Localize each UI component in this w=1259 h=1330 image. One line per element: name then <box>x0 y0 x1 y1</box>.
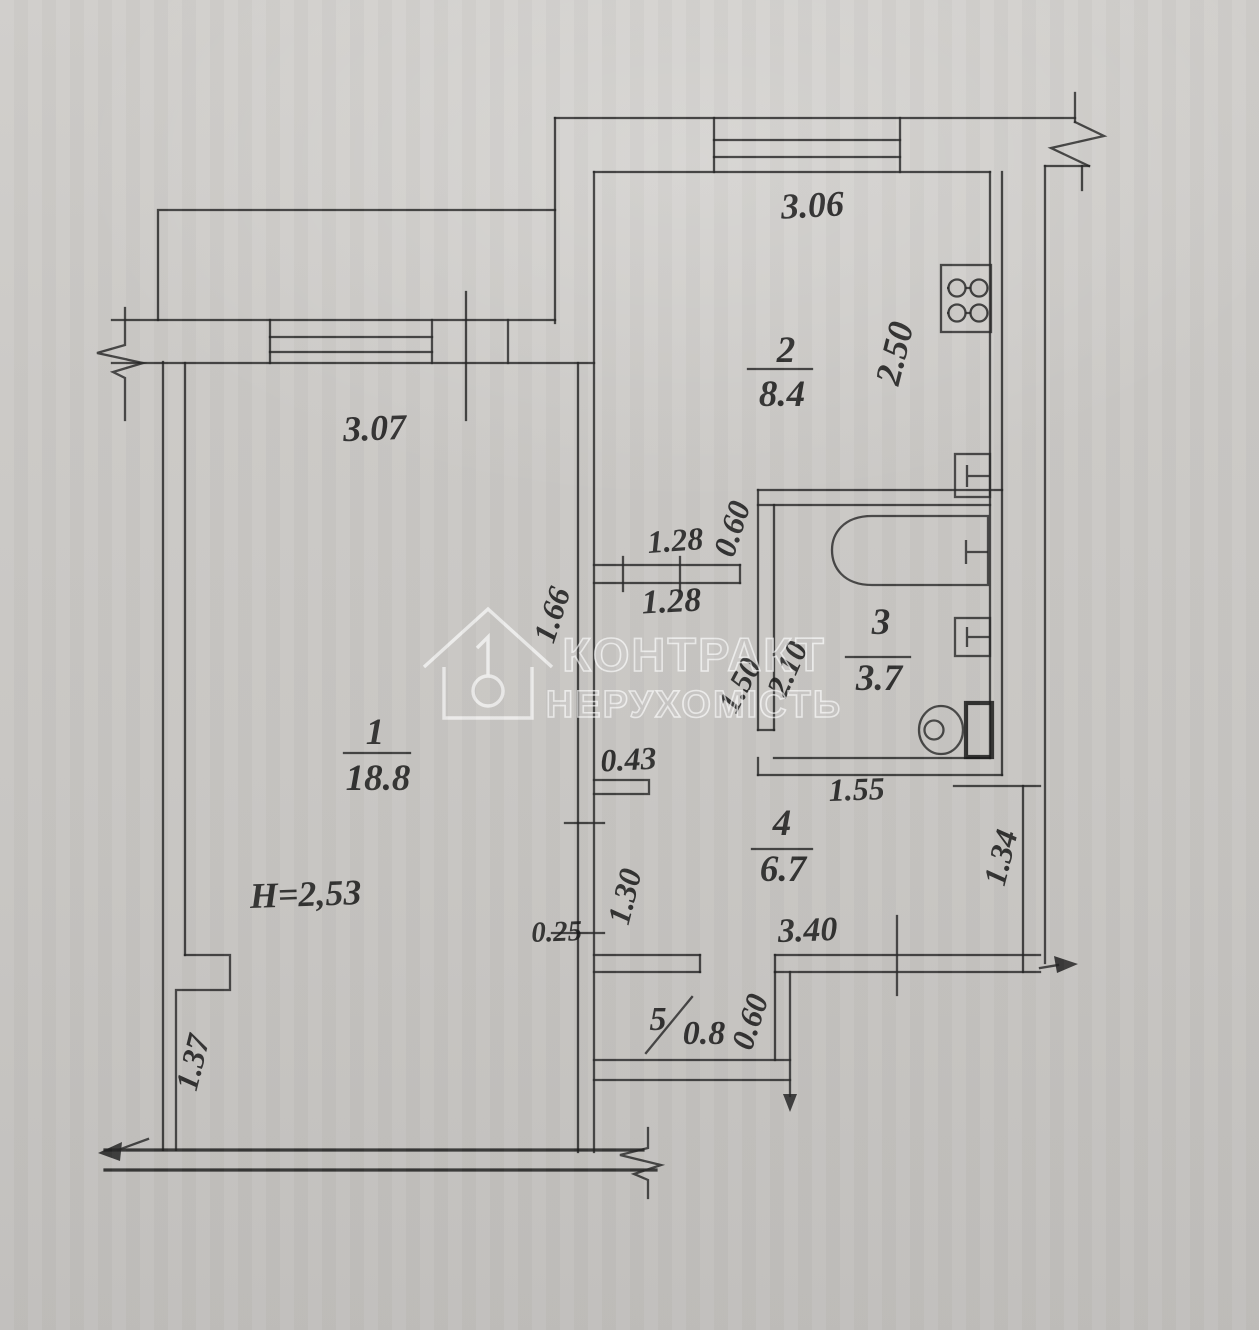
room-area: 8.4 <box>759 374 805 415</box>
watermark-line2: НЕРУХОМІСТЬ <box>546 684 842 726</box>
watermark: КОНТРАКТ НЕРУХОМІСТЬ <box>424 609 842 726</box>
dimension-label: 0.25 <box>531 915 583 949</box>
balcony-outline <box>158 210 555 320</box>
room-2-label: 2 8.4 <box>748 330 812 415</box>
room-number: 1 <box>366 712 385 753</box>
wall-break-icon <box>1051 122 1104 166</box>
room-number: 4 <box>772 803 792 844</box>
dimension-label: 0.60 <box>706 496 758 560</box>
dimension-label: 1.55 <box>828 770 885 808</box>
room-3-label: 3 3.7 <box>846 602 910 699</box>
room-5-label: 5 0.8 <box>646 997 725 1053</box>
stove-icon <box>941 265 991 332</box>
dimension-label: 1.34 <box>976 826 1024 889</box>
room-area: 3.7 <box>855 658 904 699</box>
toilet-icon <box>919 703 992 757</box>
wall-break-icon <box>620 1128 661 1198</box>
dimension-label: 3.07 <box>341 407 408 449</box>
floor-plan-svg: 1 18.8 2 8.4 3 3.7 4 6.7 5 0.8 H=2,53 3.… <box>0 0 1259 1330</box>
dimension-label: 3.40 <box>776 911 838 950</box>
room-number: 3 <box>871 602 891 643</box>
scanned-floor-plan-page: 1 18.8 2 8.4 3 3.7 4 6.7 5 0.8 H=2,53 3.… <box>0 0 1259 1330</box>
washbasin-icon <box>955 618 990 656</box>
room-number: 2 <box>776 330 796 371</box>
dimension-label: 2.50 <box>867 318 921 390</box>
room-area: 0.8 <box>683 1015 726 1052</box>
window-room1-icon <box>270 320 432 363</box>
dimension-label: 1.30 <box>600 865 648 928</box>
room-1-label: 1 18.8 <box>344 712 410 799</box>
ceiling-height-note: H=2,53 <box>248 872 362 916</box>
dimension-label: 0.60 <box>724 989 776 1053</box>
bath-faucet-icon <box>966 540 988 564</box>
dimension-label: 1.28 <box>641 581 702 621</box>
dimension-label: 1.28 <box>646 520 704 560</box>
entry-arrow-icon <box>783 1094 797 1112</box>
room-4-label: 4 6.7 <box>752 803 812 890</box>
window-kitchen-icon <box>714 118 900 172</box>
room-area: 6.7 <box>760 849 808 890</box>
direction-arrows <box>98 956 1078 1161</box>
room-area: 18.8 <box>346 758 411 799</box>
dimension-label: 3.06 <box>779 183 845 226</box>
watermark-line1: КОНТРАКТ <box>562 628 826 681</box>
bathtub-icon <box>832 516 988 585</box>
dimension-label: 0.43 <box>600 740 658 779</box>
